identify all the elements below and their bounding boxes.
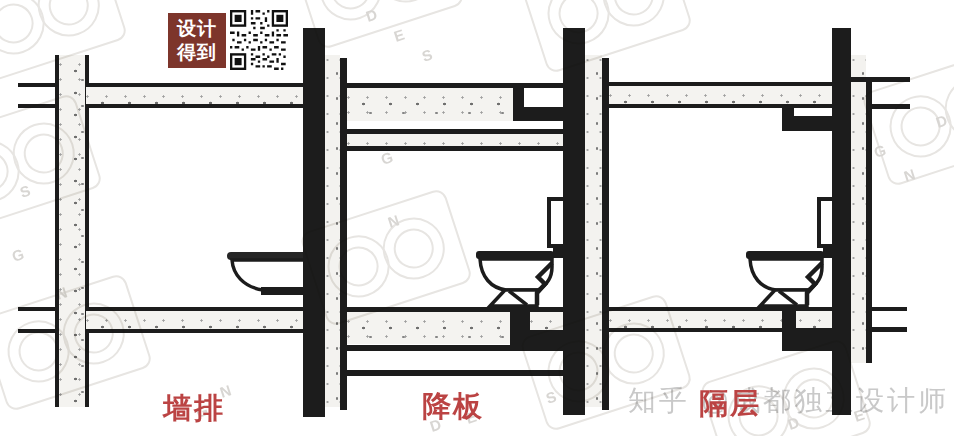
ceiling-fill-layer	[347, 88, 513, 121]
label-wall-drain: 墙排	[163, 389, 225, 429]
diagram-canvas: 知乎 @成都独立设计师	[0, 0, 954, 436]
soil-stack-pipe	[563, 28, 585, 415]
slab-stub-line	[18, 329, 57, 333]
brand-logo-line2: 得到	[177, 41, 217, 65]
lowered-ceiling-slab	[347, 129, 563, 151]
soil-stack-pipe	[832, 28, 851, 415]
partition-wall-line	[866, 82, 872, 363]
upper-drain-horizontal-pipe	[513, 107, 563, 121]
slab-stub-line	[851, 77, 910, 82]
ceiling-slab	[609, 82, 832, 108]
wall-hung-toilet-icon	[224, 248, 312, 300]
slab-stub-line	[18, 104, 57, 108]
floor-fill-layer	[347, 312, 510, 344]
upper-drain-horizontal-pipe	[782, 116, 832, 131]
partition-wall-line	[340, 58, 347, 410]
drain-horizontal-pipe	[782, 332, 832, 351]
floor-fill-layer	[530, 312, 563, 330]
slab-stub-line	[18, 307, 57, 311]
ceiling-slab	[86, 83, 303, 108]
soil-stack-pipe	[303, 28, 325, 417]
label-sunken-slab: 降板	[422, 387, 484, 427]
partition-wall-line	[602, 58, 609, 410]
pipe-chase-wall	[851, 55, 866, 363]
qr-code	[230, 10, 288, 70]
brand-logo: 设计 得到	[168, 13, 226, 68]
slab-stub-line	[18, 83, 57, 87]
floor-slab	[609, 307, 832, 332]
lowered-slab-top-line	[347, 345, 563, 351]
lowered-slab-bottom-line	[347, 370, 563, 376]
left-wall	[55, 55, 89, 407]
pipe-chase-wall	[325, 55, 340, 407]
slab-stub-line	[872, 104, 910, 109]
floor-slab	[86, 307, 303, 333]
pipe-chase-wall	[585, 55, 602, 407]
slab-stub-line	[872, 327, 907, 332]
floor-toilet-icon	[744, 195, 844, 310]
slab-stub-line	[872, 307, 907, 311]
drainage-diagram	[0, 0, 954, 436]
drain-horizontal-pipe	[510, 330, 563, 345]
brand-logo-line1: 设计	[177, 17, 217, 41]
label-interlayer: 隔层	[699, 384, 761, 424]
floor-toilet-icon	[474, 195, 574, 310]
